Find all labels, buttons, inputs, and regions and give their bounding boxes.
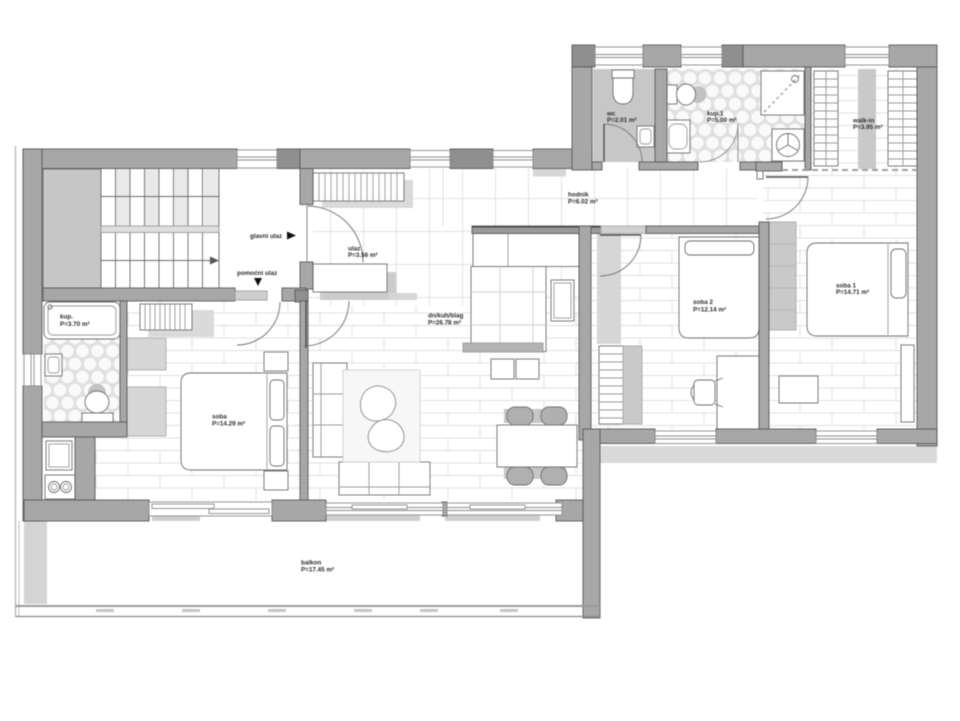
svg-text:P=26.78 m²: P=26.78 m² — [428, 320, 461, 327]
svg-text:kup.: kup. — [60, 314, 73, 321]
svg-text:P=5.00 m²: P=5.00 m² — [707, 117, 737, 124]
svg-text:P=3.95 m²: P=3.95 m² — [853, 124, 883, 131]
svg-text:hodnik: hodnik — [568, 192, 589, 199]
svg-text:soba 2: soba 2 — [693, 299, 713, 306]
svg-text:P=14.29 m²: P=14.29 m² — [212, 421, 245, 428]
svg-text:pomoćni ulaz: pomoćni ulaz — [237, 270, 277, 277]
svg-text:soba: soba — [212, 414, 227, 421]
svg-text:dn/kuh/blag: dn/kuh/blag — [428, 313, 463, 320]
svg-text:P=17.45 m²: P=17.45 m² — [301, 567, 334, 574]
svg-text:P=12.14 m²: P=12.14 m² — [693, 307, 726, 314]
svg-text:P=6.02 m²: P=6.02 m² — [568, 199, 598, 206]
svg-text:P=14.71 m²: P=14.71 m² — [836, 289, 869, 296]
svg-text:P=3.56 m²: P=3.56 m² — [348, 252, 378, 259]
svg-text:P=2.01 m²: P=2.01 m² — [607, 117, 637, 124]
svg-text:balkon: balkon — [301, 560, 321, 567]
svg-text:P=3.70 m²: P=3.70 m² — [60, 321, 90, 328]
svg-text:glavni ulaz: glavni ulaz — [250, 233, 282, 240]
